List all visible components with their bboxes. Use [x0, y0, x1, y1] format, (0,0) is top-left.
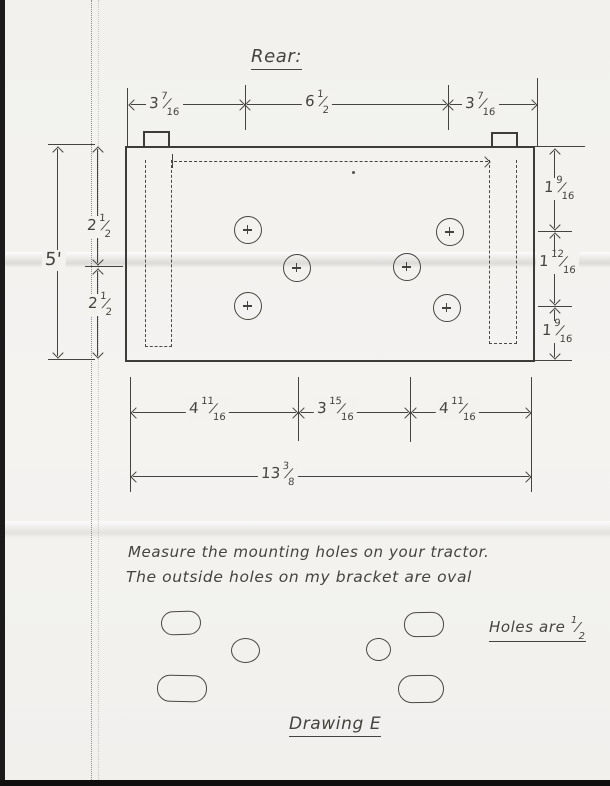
holes-size-note-fraction: 1⁄2: [571, 618, 586, 636]
dim-top-right: 37⁄16: [461, 94, 499, 116]
oval-hole-sketch: [404, 612, 444, 638]
mounting-hole: [234, 292, 262, 320]
bend-line-tick: [172, 154, 173, 168]
note-line-2: The outside holes on my bracket are oval: [126, 568, 472, 586]
mounting-hole: [433, 294, 461, 322]
oval-hole-sketch: [157, 675, 207, 703]
extension-line: [127, 88, 128, 146]
page-title-text: Rear:: [251, 46, 302, 67]
round-hole-sketch: [231, 638, 260, 663]
page-title: Rear:: [251, 46, 302, 70]
left-oval-slot-dashed: [145, 160, 172, 347]
dim-left-overall: 5': [41, 250, 67, 271]
right-mounting-tab: [491, 132, 518, 147]
dim-bottom-center: 315⁄16: [313, 399, 358, 421]
perforation-line: [91, 0, 92, 786]
extension-line: [298, 377, 299, 441]
mounting-hole: [283, 254, 311, 282]
scan-left-edge: [0, 0, 5, 786]
dim-left-upper: 21⁄2: [83, 216, 115, 238]
pencil-speck: [352, 171, 355, 174]
extension-line: [531, 377, 532, 492]
bend-dashed-line: [174, 161, 488, 162]
note-line-1: Measure the mounting holes on your tract…: [128, 543, 489, 561]
holes-size-note-text: Holes are: [489, 618, 565, 636]
scan-bottom-edge: [0, 780, 610, 786]
extension-line: [535, 146, 585, 147]
extension-line: [48, 144, 95, 145]
dim-left-lower: 21⁄2: [84, 294, 116, 316]
dim-bottom-right: 411⁄16: [435, 399, 480, 421]
dim-top-center: 61⁄2: [301, 92, 333, 114]
extension-line: [48, 359, 95, 360]
dimension-tick: [85, 266, 123, 267]
right-oval-slot-dashed: [489, 160, 517, 344]
extension-line: [535, 360, 572, 361]
mounting-hole: [234, 216, 262, 244]
dimension-arrow: [133, 476, 529, 477]
drawing-label: Drawing E: [289, 714, 381, 737]
round-hole-sketch: [365, 637, 392, 662]
dim-right-top: 19⁄16: [540, 178, 578, 200]
perforation-line: [98, 0, 99, 786]
dimension-arrow: [97, 149, 98, 263]
dim-bottom-overall: 133⁄8: [257, 464, 299, 486]
dimension-arrow: [247, 104, 446, 105]
dim-top-left: 37⁄16: [145, 94, 183, 116]
oval-hole-sketch: [398, 675, 444, 704]
left-mounting-tab: [143, 131, 170, 147]
oval-hole-sketch: [161, 610, 202, 635]
extension-line: [537, 78, 538, 146]
mounting-hole: [436, 218, 464, 246]
holes-size-note: Holes are 1⁄2: [489, 618, 586, 642]
mounting-hole: [393, 253, 421, 281]
bracket-outline: [125, 146, 535, 362]
dim-right-middle: 112⁄16: [535, 252, 580, 274]
drawing-label-text: Drawing E: [289, 714, 381, 734]
extension-line: [410, 377, 411, 442]
dim-bottom-left: 411⁄16: [185, 399, 230, 421]
dim-right-bottom: 19⁄16: [538, 321, 576, 343]
